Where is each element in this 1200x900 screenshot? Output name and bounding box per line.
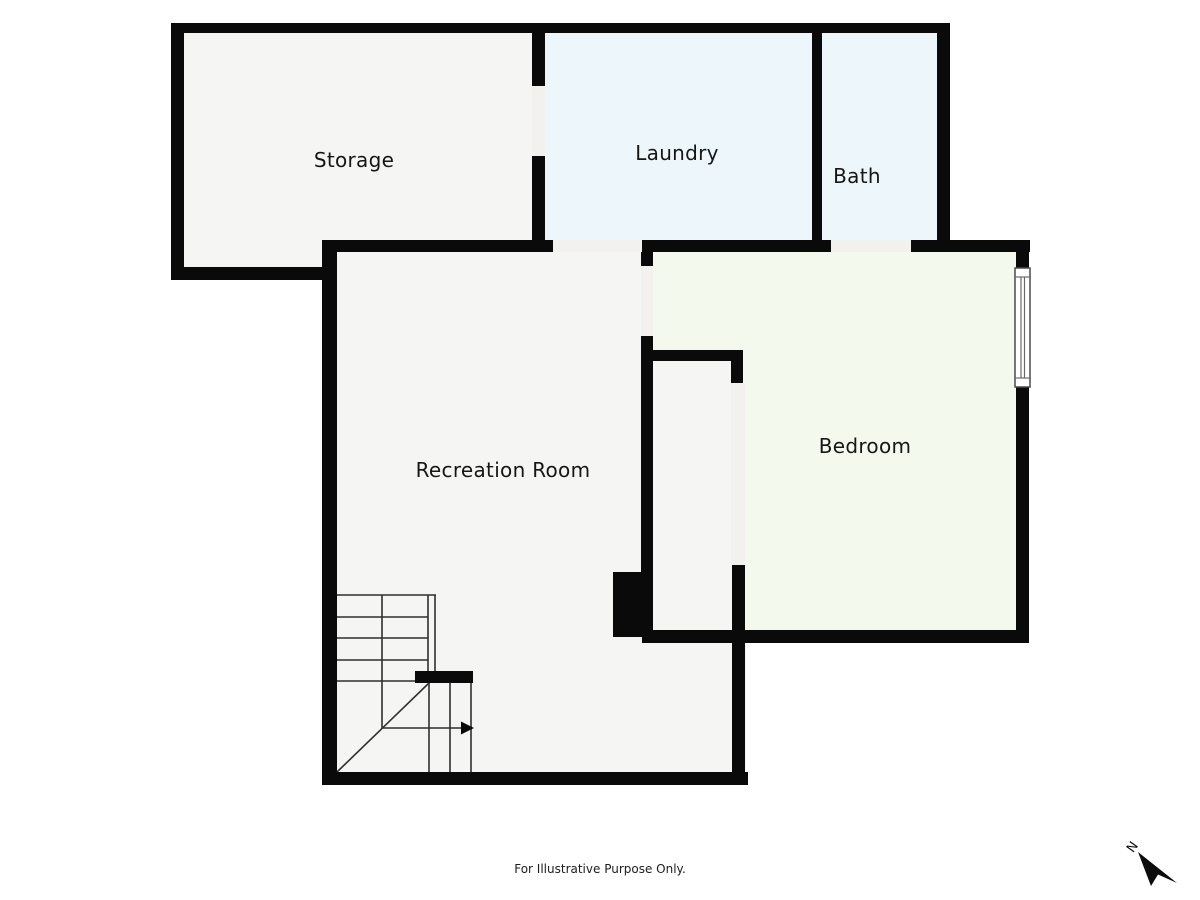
bath-label: Bath bbox=[833, 164, 881, 188]
wall-bedroom-bottom bbox=[642, 630, 1029, 643]
closet-opening bbox=[731, 383, 745, 565]
laundry-recreation-doorway bbox=[553, 240, 642, 252]
wall-closet-right-upper bbox=[731, 350, 743, 383]
closet-nook-area bbox=[653, 361, 732, 630]
wall-storage-left bbox=[171, 23, 184, 280]
north-arrow bbox=[1138, 852, 1177, 886]
disclaimer-text: For Illustrative Purpose Only. bbox=[514, 862, 686, 876]
wall-storage-laundry-upper bbox=[532, 33, 545, 86]
bedroom-label: Bedroom bbox=[819, 434, 912, 458]
floorplan-drawing bbox=[0, 0, 1200, 900]
wall-recreation-right-lower bbox=[732, 565, 745, 785]
wall-bedroom-top-left bbox=[642, 240, 831, 252]
storage-label: Storage bbox=[314, 148, 394, 172]
recreation-label: Recreation Room bbox=[416, 458, 591, 482]
wall-storage-bottom bbox=[171, 267, 337, 280]
laundry-room-area bbox=[542, 33, 812, 240]
wall-recreation-bottom bbox=[322, 772, 748, 785]
wall-closet-top bbox=[642, 350, 743, 361]
stair-landing-rail bbox=[415, 671, 473, 683]
wall-bedroom-top-right bbox=[911, 240, 1030, 252]
wall-bath-right-outer bbox=[937, 23, 950, 252]
storage-laundry-doorway bbox=[532, 86, 545, 156]
wall-recreation-bedroom-stub bbox=[641, 252, 653, 266]
room-areas bbox=[184, 33, 1016, 772]
bath-doorway bbox=[831, 240, 911, 252]
window-frame bbox=[1015, 268, 1030, 387]
wall-top-outer bbox=[171, 23, 950, 33]
wall-storage-laundry-lower bbox=[532, 156, 545, 240]
bedroom-window bbox=[1015, 268, 1030, 387]
structural-block bbox=[613, 572, 653, 637]
floorplan-canvas: Storage Laundry Bath Recreation Room Bed… bbox=[0, 0, 1200, 900]
bedroom-doorway bbox=[641, 266, 653, 336]
wall-recreation-left bbox=[322, 240, 337, 785]
bath-room-area bbox=[822, 33, 937, 240]
wall-recreation-bedroom-main bbox=[641, 336, 653, 572]
laundry-label: Laundry bbox=[635, 141, 719, 165]
wall-laundry-bath-divider bbox=[812, 33, 822, 240]
wall-recreation-top bbox=[322, 240, 553, 252]
north-arrow-pointer bbox=[1138, 852, 1177, 886]
